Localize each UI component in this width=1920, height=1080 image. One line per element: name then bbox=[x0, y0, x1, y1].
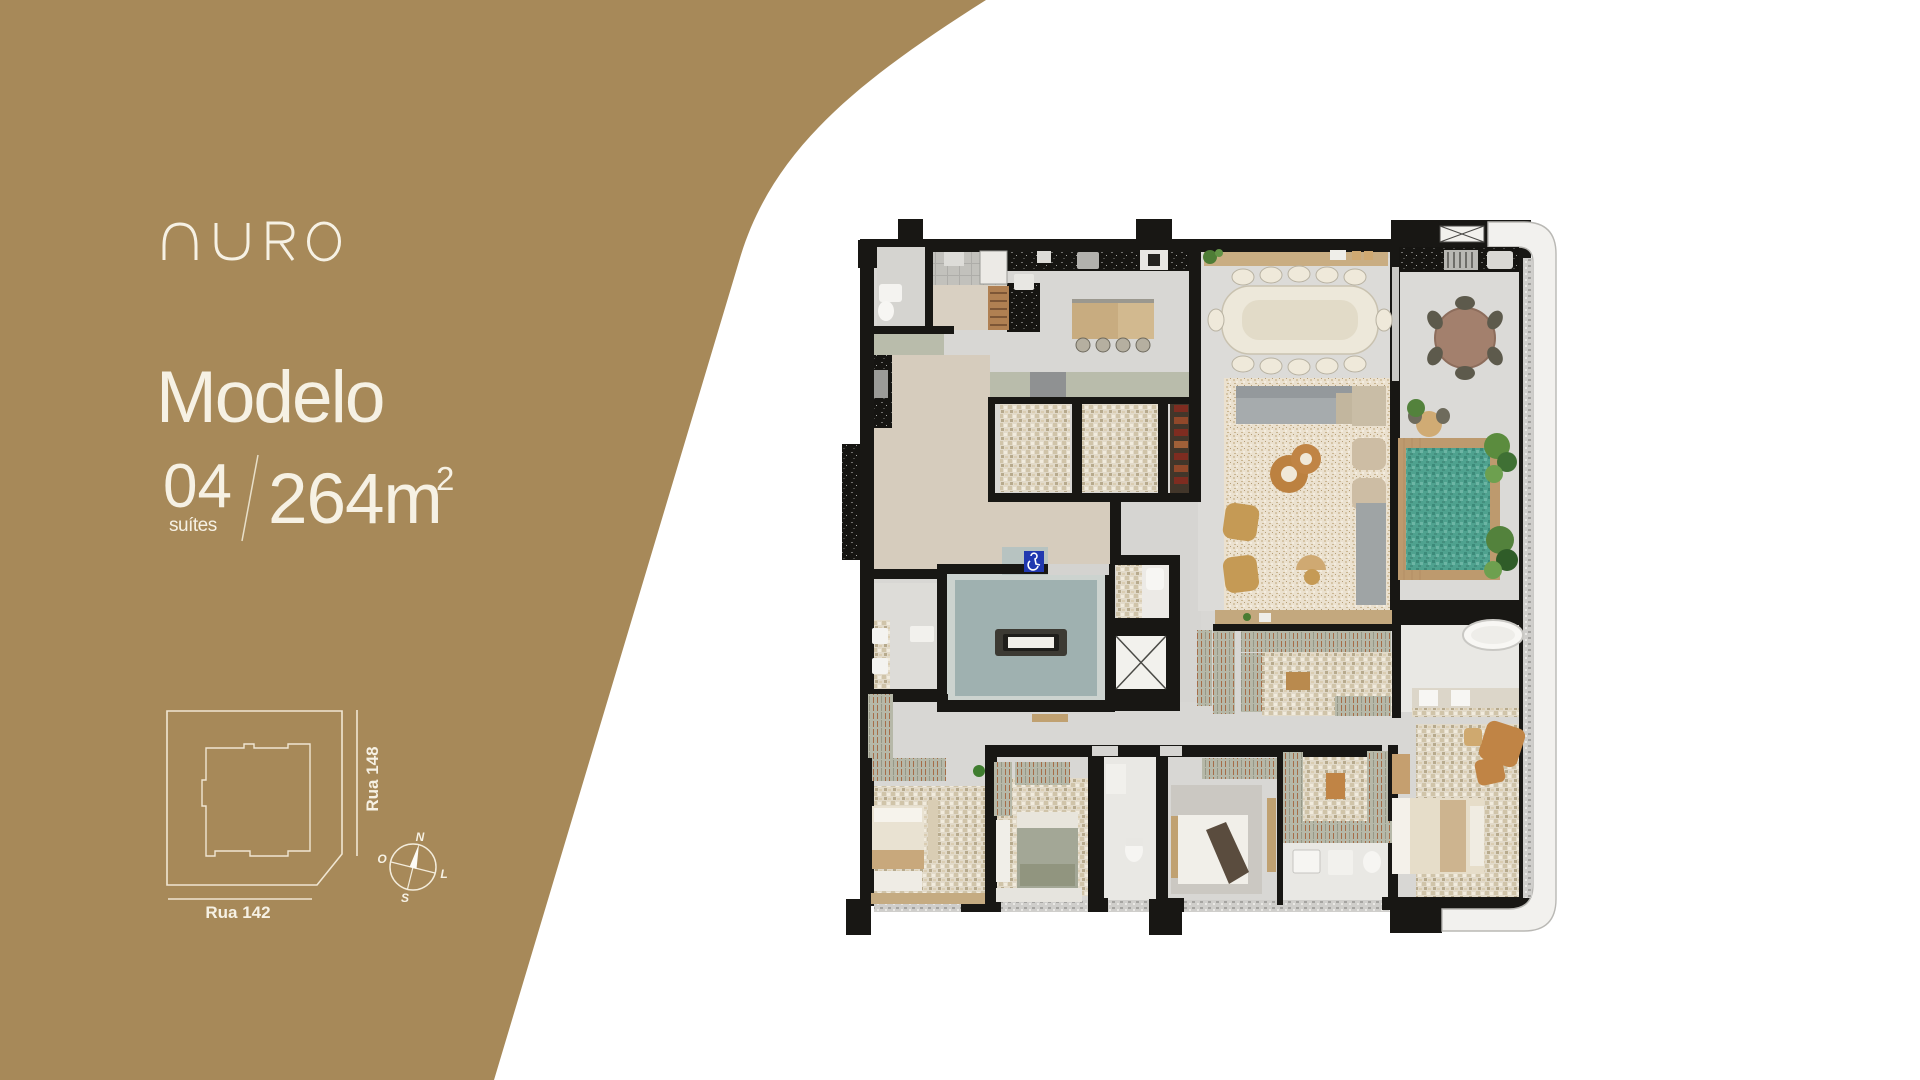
svg-text:2: 2 bbox=[436, 460, 454, 497]
svg-text:suítes: suítes bbox=[169, 515, 217, 536]
svg-text:Modelo: Modelo bbox=[156, 357, 383, 438]
svg-text:04: 04 bbox=[163, 452, 232, 521]
svg-text:N: N bbox=[416, 830, 425, 844]
svg-text:Rua 148: Rua 148 bbox=[363, 746, 382, 811]
svg-text:Rua 142: Rua 142 bbox=[205, 903, 270, 922]
svg-text:264m: 264m bbox=[268, 460, 442, 539]
svg-text:O: O bbox=[377, 852, 387, 866]
svg-text:L: L bbox=[440, 867, 447, 881]
svg-text:S: S bbox=[401, 891, 409, 905]
